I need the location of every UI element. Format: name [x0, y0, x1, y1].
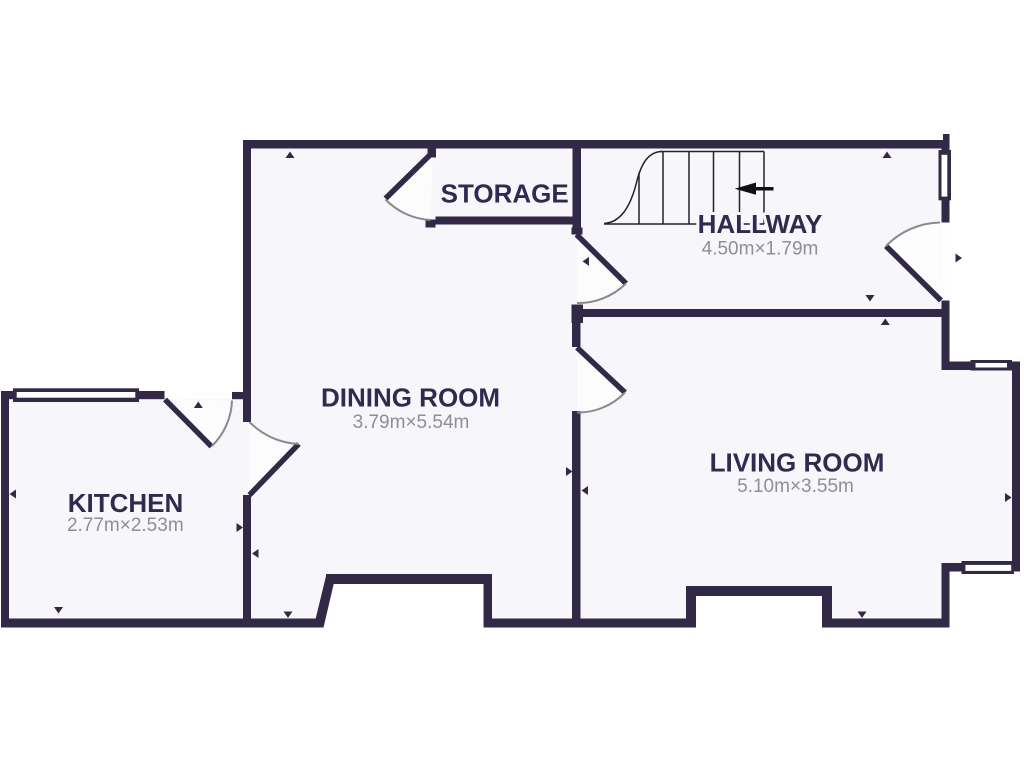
svg-text:KITCHEN: KITCHEN — [68, 488, 184, 518]
svg-text:5.10m×3.55m: 5.10m×3.55m — [737, 476, 854, 497]
svg-text:STORAGE: STORAGE — [441, 178, 569, 208]
svg-text:HALLWAY: HALLWAY — [698, 209, 823, 239]
svg-text:LIVING ROOM: LIVING ROOM — [710, 448, 885, 478]
svg-text:DINING ROOM: DINING ROOM — [321, 383, 500, 413]
svg-text:4.50m×1.79m: 4.50m×1.79m — [702, 239, 819, 260]
svg-text:2.77m×2.53m: 2.77m×2.53m — [67, 515, 184, 536]
svg-text:3.79m×5.54m: 3.79m×5.54m — [353, 412, 470, 433]
